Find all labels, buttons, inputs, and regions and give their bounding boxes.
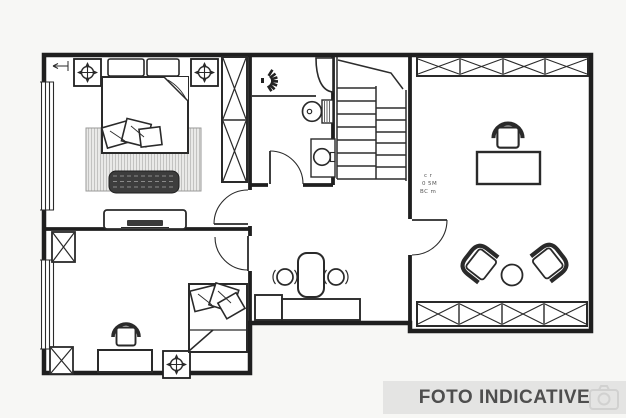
storage-bench — [109, 171, 179, 193]
banner-label: FOTO INDICATIVE — [419, 387, 590, 409]
floor-plan-drawing: c r 0 5M BC m — [0, 0, 626, 418]
window-bedroom-bottom — [40, 260, 54, 349]
office-chair — [113, 324, 139, 346]
camera-icon — [589, 384, 619, 410]
console-side — [255, 295, 282, 320]
desk — [477, 152, 540, 184]
wardrobe — [50, 347, 73, 374]
wardrobe-4-door-top — [417, 57, 588, 76]
dresser-with-tv — [104, 210, 186, 229]
floor-plan-page: c r 0 5M BC m FOTO INDICATIVE — [0, 0, 626, 418]
ceiling-light-icon — [191, 59, 218, 86]
wardrobe-4-door-bottom — [417, 302, 587, 326]
svg-text:c r: c r — [424, 173, 433, 179]
ceiling-light-icon — [163, 351, 190, 378]
office-chair — [493, 124, 522, 148]
wardrobe-2-door — [222, 57, 247, 182]
pillow — [147, 59, 179, 76]
pillow — [108, 59, 144, 76]
high-back-chair — [298, 253, 324, 297]
window-bedroom-top — [40, 82, 54, 210]
toilet — [303, 100, 334, 123]
photo-indicative-banner: FOTO INDICATIVE — [383, 381, 626, 414]
svg-text:0 5M: 0 5M — [422, 181, 437, 187]
svg-text:BC m: BC m — [420, 189, 436, 195]
console-desk — [282, 299, 360, 320]
wardrobe — [52, 232, 75, 262]
ceiling-light-icon — [74, 59, 101, 86]
round-table — [502, 265, 523, 286]
washbasin — [311, 139, 335, 177]
desk — [98, 350, 152, 372]
